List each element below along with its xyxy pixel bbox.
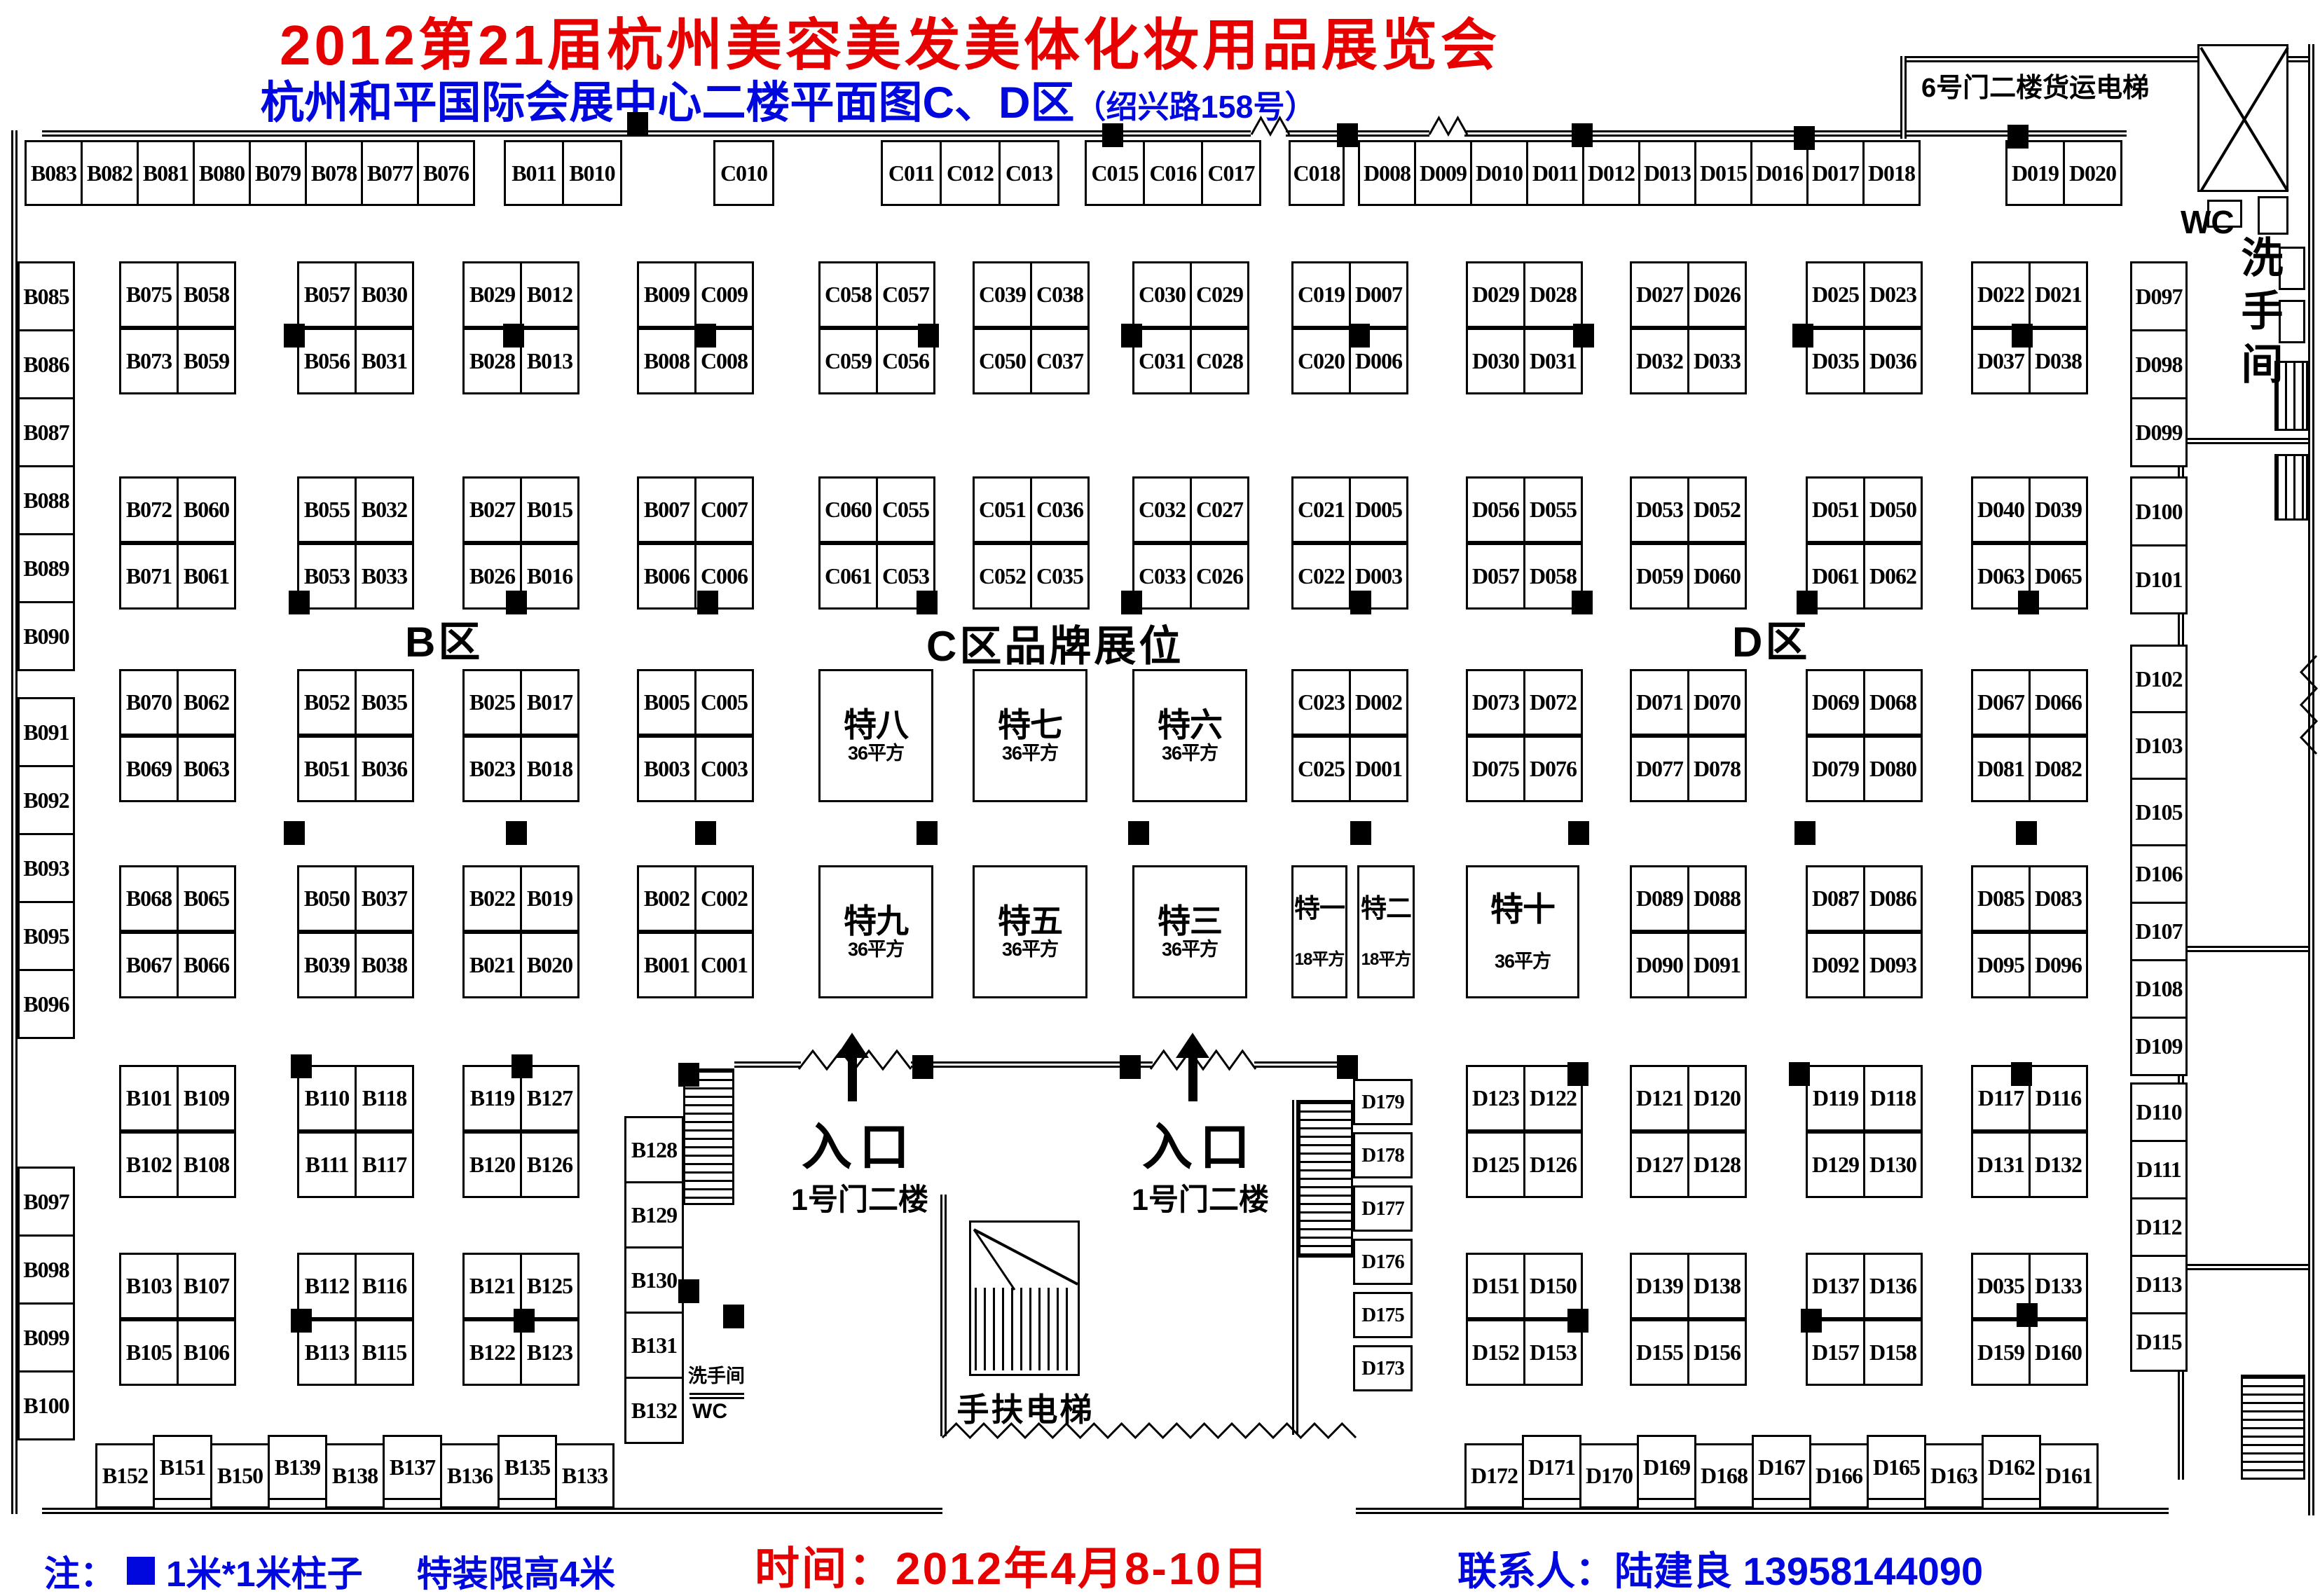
booth: C039 [973, 261, 1032, 328]
booth: D095 [1971, 932, 2031, 998]
stairs [1298, 1100, 1353, 1258]
booth: B130 [624, 1246, 684, 1314]
booth: D177 [1353, 1185, 1413, 1232]
booth: D032 [1630, 328, 1689, 394]
booth: B132 [624, 1377, 684, 1444]
booth: D020 [2063, 140, 2122, 206]
booth: D026 [1687, 261, 1747, 328]
booth: B069 [119, 736, 179, 802]
booth: B152 [95, 1443, 155, 1508]
booth: B089 [18, 533, 75, 603]
booth: D071 [1630, 669, 1689, 736]
booth: C035 [1030, 543, 1090, 610]
pillar-legend-square-icon [127, 1557, 155, 1585]
special-booth-area: 36平方 [848, 743, 904, 764]
booth: B052 [297, 669, 357, 736]
booth: D023 [1863, 261, 1923, 328]
pillar-icon [1568, 821, 1589, 845]
booth: C003 [694, 736, 754, 802]
booth: C037 [1030, 328, 1090, 394]
booth: D097 [2130, 261, 2188, 331]
booth: D113 [2130, 1255, 2188, 1314]
booth: B095 [18, 901, 75, 971]
booth: D091 [1687, 932, 1747, 998]
booth: B096 [18, 969, 75, 1039]
booth: B079 [249, 140, 307, 206]
arrow-stem [848, 1058, 857, 1101]
booth: D072 [1523, 669, 1583, 736]
booth: D155 [1630, 1319, 1689, 1386]
booth: D178 [1353, 1132, 1413, 1178]
booth: B078 [305, 140, 363, 206]
booth: D077 [1630, 736, 1689, 802]
restroom-label: 洗手间 [688, 1361, 745, 1388]
entrance-arrow [835, 1033, 869, 1101]
booth: B136 [440, 1443, 500, 1508]
special-booth: 特八36平方 [818, 669, 933, 802]
booth: D057 [1466, 543, 1525, 610]
booth: B017 [520, 669, 579, 736]
booth: D103 [2130, 711, 2188, 780]
booth: B056 [297, 328, 357, 394]
booth: C005 [694, 669, 754, 736]
booth: D053 [1630, 476, 1689, 543]
escalator-label: 手扶电梯 [943, 1384, 1108, 1431]
note-prefix: 注： [44, 1545, 116, 1596]
booth: D018 [1862, 140, 1921, 206]
booth: C013 [998, 140, 1059, 206]
pillar-icon [723, 1305, 744, 1328]
booth: D161 [2039, 1443, 2099, 1508]
pillar-icon [1572, 591, 1593, 614]
booth: C027 [1190, 476, 1249, 543]
booth: D028 [1523, 261, 1583, 328]
booth: D116 [2029, 1065, 2088, 1131]
booth: B023 [462, 736, 522, 802]
booth: B050 [297, 865, 357, 932]
booth: D008 [1358, 140, 1416, 206]
pillar-icon [291, 1054, 312, 1078]
booth: C030 [1132, 261, 1192, 328]
booth: C058 [818, 261, 878, 328]
booth: D076 [1523, 736, 1583, 802]
special-booth-name: 特五 [998, 903, 1062, 940]
booth: D170 [1579, 1443, 1639, 1508]
booth: B060 [177, 476, 236, 543]
booth: B120 [462, 1131, 522, 1198]
booth: B057 [297, 261, 357, 328]
pillar-icon [506, 821, 527, 845]
booth: B001 [637, 932, 696, 998]
booth: D121 [1630, 1065, 1689, 1131]
booth: B013 [520, 328, 579, 394]
special-booth: 特五36平方 [973, 865, 1087, 998]
booth: D179 [1353, 1079, 1413, 1125]
booth: D073 [1466, 669, 1525, 736]
booth: B071 [119, 543, 179, 610]
booth: B088 [18, 465, 75, 535]
booth: D125 [1466, 1131, 1525, 1198]
event-time: 时间：2012年4月8-10日 [755, 1533, 1270, 1596]
booth: B131 [624, 1312, 684, 1379]
booth: B065 [177, 865, 236, 932]
booth: D039 [2029, 476, 2088, 543]
booth: D156 [1687, 1319, 1747, 1386]
booth: B015 [520, 476, 579, 543]
pillar-icon [2012, 324, 2033, 348]
booth: D012 [1582, 140, 1640, 206]
booth: C009 [694, 261, 754, 328]
wall [2175, 1264, 2312, 1270]
booth: D021 [2029, 261, 2088, 328]
booth: B029 [462, 261, 522, 328]
booth: D112 [2130, 1197, 2188, 1257]
booth: C002 [694, 865, 754, 932]
booth: D111 [2130, 1140, 2188, 1199]
booth: B027 [462, 476, 522, 543]
pillar-icon [1573, 324, 1594, 348]
wall [1292, 1100, 1298, 1435]
booth: D092 [1806, 932, 1865, 998]
booth: C012 [940, 140, 1001, 206]
booth: D017 [1806, 140, 1865, 206]
pillar-icon [1128, 821, 1149, 845]
booth: D107 [2130, 902, 2188, 961]
wall [1356, 1508, 2169, 1514]
pillar-icon [1102, 123, 1123, 147]
page-subtitle: 杭州和平国际会展中心二楼平面图C、D区（绍兴路158号） [175, 67, 1401, 131]
booth: B033 [355, 543, 414, 610]
booth: D009 [1414, 140, 1472, 206]
booth: C022 [1291, 543, 1351, 610]
booth: B077 [361, 140, 419, 206]
stairs [683, 1068, 734, 1205]
booth: D158 [1863, 1319, 1923, 1386]
pillar-icon [1801, 1309, 1822, 1333]
booth: B032 [355, 476, 414, 543]
booth: D115 [2130, 1312, 2188, 1372]
special-booth-area: 36平方 [1002, 743, 1058, 764]
pillar-icon [1337, 1055, 1358, 1079]
freight-elevator-box [2197, 44, 2288, 192]
booth: B086 [18, 329, 75, 399]
booth: D051 [1806, 476, 1865, 543]
pillar-icon [917, 821, 938, 845]
booth: B118 [355, 1065, 414, 1131]
booth: B087 [18, 397, 75, 467]
booth: D088 [1687, 865, 1747, 932]
pillar-icon [1789, 1062, 1810, 1086]
special-booth-area: 36平方 [848, 940, 904, 961]
booth: C020 [1291, 328, 1351, 394]
pillar-icon [917, 591, 938, 614]
booth: D085 [1971, 865, 2031, 932]
booth: D052 [1687, 476, 1747, 543]
booth: D151 [1466, 1253, 1525, 1319]
booth: D152 [1466, 1319, 1525, 1386]
pillar-icon [1121, 591, 1142, 614]
pillar-icon [1792, 324, 1813, 348]
pillar-icon [1567, 1309, 1588, 1333]
booth: C050 [973, 328, 1032, 394]
booth: D159 [1971, 1319, 2031, 1386]
booth: B022 [462, 865, 522, 932]
booth: B108 [177, 1131, 236, 1198]
restroom-label-vertical: 洗手间 [2228, 235, 2289, 474]
note-pillar: 1米*1米柱子 [166, 1545, 363, 1596]
wall [2175, 946, 2312, 952]
booth: C052 [973, 543, 1032, 610]
booth: D059 [1630, 543, 1689, 610]
special-booth-name: 特九 [844, 903, 908, 940]
booth: D105 [2130, 778, 2188, 846]
booth: C055 [876, 476, 935, 543]
booth: B126 [520, 1131, 579, 1198]
booth: D078 [1687, 736, 1747, 802]
booth: B068 [119, 865, 179, 932]
booth: C019 [1291, 261, 1351, 328]
booth: B128 [624, 1116, 684, 1183]
booth: B081 [137, 140, 195, 206]
booth: D080 [1863, 736, 1923, 802]
zone-label-d: D区 [1732, 608, 1810, 669]
wall [734, 1061, 801, 1068]
booth: D062 [1863, 543, 1923, 610]
note-height-limit: 特装限高4米 [417, 1545, 615, 1596]
booth: B009 [637, 261, 696, 328]
booth: D016 [1750, 140, 1808, 206]
booth: B020 [520, 932, 579, 998]
gate-label: 1号门二楼 [1099, 1176, 1302, 1219]
special-booth-name: 特十 [1490, 891, 1555, 928]
booth: B150 [210, 1443, 270, 1508]
booth: D123 [1466, 1065, 1525, 1131]
special-booth-area: 36平方 [1162, 743, 1218, 764]
booth: D007 [1349, 261, 1408, 328]
booth: B102 [119, 1131, 179, 1198]
special-booth-name: 特一 [1294, 895, 1345, 923]
booth: D060 [1687, 543, 1747, 610]
booth: D056 [1466, 476, 1525, 543]
special-booth: 特九36平方 [818, 865, 933, 998]
booth: D175 [1353, 1292, 1413, 1338]
pillar-icon [695, 324, 716, 348]
booth: D106 [2130, 844, 2188, 904]
legend-note: 注：1米*1米柱子特装限高4米 [44, 1545, 615, 1596]
booth: B036 [355, 736, 414, 802]
booth: B082 [81, 140, 139, 206]
subtitle-main: 杭州和平国际会展中心二楼平面图C、D区 [260, 78, 1074, 128]
booth: B018 [520, 736, 579, 802]
pillar-icon [514, 1309, 535, 1333]
special-booth-area: 18平方 [1295, 951, 1345, 969]
wall [689, 1393, 744, 1399]
booth: D118 [1863, 1065, 1923, 1131]
booth: D067 [1971, 669, 2031, 736]
booth: C017 [1201, 140, 1261, 206]
booth: D036 [1863, 328, 1923, 394]
special-booth-area: 36平方 [1162, 940, 1218, 961]
booth: D127 [1630, 1131, 1689, 1198]
zone-label-c: C区品牌展位 [926, 612, 1183, 673]
booth: D131 [1971, 1131, 2031, 1198]
booth: B038 [355, 932, 414, 998]
booth: B115 [355, 1319, 414, 1386]
booth: C057 [876, 261, 935, 328]
pillar-icon [291, 1309, 312, 1333]
booth: D108 [2130, 959, 2188, 1019]
booth: D096 [2029, 932, 2088, 998]
booth: B137 [383, 1435, 442, 1500]
booth: D081 [1971, 736, 2031, 802]
booth: D110 [2130, 1082, 2188, 1142]
booth: B103 [119, 1253, 179, 1319]
booth: D130 [1863, 1131, 1923, 1198]
booth: D098 [2130, 329, 2188, 399]
pillar-icon [1120, 1055, 1141, 1079]
pillar-icon [695, 821, 716, 845]
booth: D100 [2130, 476, 2188, 546]
booth: D119 [1806, 1065, 1865, 1131]
booth: D035 [1806, 328, 1865, 394]
pillar-icon [627, 112, 648, 136]
pillar-icon [2017, 1303, 2038, 1327]
booth: B101 [119, 1065, 179, 1131]
special-booth-area: 36平方 [1002, 940, 1058, 961]
arrow-stem [1188, 1058, 1197, 1101]
booth: D102 [2130, 645, 2188, 713]
booth: B097 [18, 1167, 75, 1237]
booth: D168 [1694, 1443, 1754, 1508]
booth: B066 [177, 932, 236, 998]
booth: C032 [1132, 476, 1192, 543]
wc-label: WC [2181, 203, 2235, 241]
floor-plan: 2012第21届杭州美容美发美体化妆用品展览会 杭州和平国际会展中心二楼平面图C… [0, 0, 2320, 1596]
booth: D171 [1522, 1435, 1581, 1500]
pillar-icon [678, 1063, 699, 1087]
pillar-icon [1572, 123, 1593, 147]
special-booth-area: 36平方 [1495, 951, 1551, 972]
special-booth: 特六36平方 [1132, 669, 1247, 802]
booth: D083 [2029, 865, 2088, 932]
booth: D136 [1863, 1253, 1923, 1319]
wall [1900, 56, 1907, 139]
booth: C026 [1190, 543, 1249, 610]
zone-label-b: B区 [405, 608, 483, 669]
arrow-head-icon [1176, 1033, 1209, 1058]
pillar-icon [284, 821, 305, 845]
booth: B133 [555, 1443, 615, 1508]
booth: B051 [297, 736, 357, 802]
pillar-icon [1349, 324, 1370, 348]
booth: D128 [1687, 1131, 1747, 1198]
booth: B006 [637, 543, 696, 610]
booth: D075 [1466, 736, 1525, 802]
booth: D005 [1349, 476, 1408, 543]
booth: C018 [1289, 140, 1345, 206]
booth: B107 [177, 1253, 236, 1319]
booth: C015 [1085, 140, 1145, 206]
booth: D169 [1637, 1435, 1696, 1500]
wall-break-zigzag [1251, 116, 1289, 136]
booth: B111 [297, 1131, 357, 1198]
booth: D033 [1687, 328, 1747, 394]
pillar-icon [2011, 1062, 2032, 1086]
booth: B002 [637, 865, 696, 932]
booth: B016 [520, 543, 579, 610]
special-booth-area: 18平方 [1361, 951, 1411, 969]
booth: D138 [1687, 1253, 1747, 1319]
pillar-icon [284, 324, 305, 348]
booth: D068 [1863, 669, 1923, 736]
contact-info: 联系人：陆建良 13958144090 [1457, 1540, 1983, 1596]
booth: B011 [504, 140, 564, 206]
booth: B105 [119, 1319, 179, 1386]
booth: B062 [177, 669, 236, 736]
booth: B061 [177, 543, 236, 610]
special-booth-name: 特六 [1158, 707, 1222, 743]
booth: B098 [18, 1234, 75, 1305]
booth: D029 [1466, 261, 1525, 328]
booth: B059 [177, 328, 236, 394]
booth: D173 [1353, 1345, 1413, 1391]
booth: C021 [1291, 476, 1351, 543]
booth: C023 [1291, 669, 1351, 736]
wall [42, 1508, 942, 1514]
booth: D082 [2029, 736, 2088, 802]
pillar-icon [678, 1279, 699, 1303]
booth: D162 [1982, 1435, 2041, 1500]
booth: B116 [355, 1253, 414, 1319]
entrance-label: 入口 [796, 1106, 922, 1179]
wall-break-zigzag [1429, 116, 1467, 136]
booth: D001 [1349, 736, 1408, 802]
freight-elevator-label: 6号门二楼货运电梯 [1921, 66, 2188, 104]
booth: B055 [297, 476, 357, 543]
booth: B035 [355, 669, 414, 736]
booth: C016 [1143, 140, 1203, 206]
booth: D090 [1630, 932, 1689, 998]
wall [11, 130, 18, 1514]
pillar-icon [2007, 125, 2029, 149]
booth: B070 [119, 669, 179, 736]
booth: B135 [497, 1435, 557, 1500]
pillar-icon [2018, 591, 2039, 614]
pillar-icon [1794, 126, 1815, 150]
service-room [2258, 196, 2288, 235]
wc-label: WC [692, 1400, 727, 1424]
booth: C038 [1030, 261, 1090, 328]
booth: B063 [177, 736, 236, 802]
pillar-icon [503, 324, 524, 348]
booth: B039 [297, 932, 357, 998]
booth: D038 [2029, 328, 2088, 394]
booth: D167 [1752, 1435, 1811, 1500]
special-booth-name: 特八 [844, 707, 908, 743]
pillar-icon [1121, 324, 1142, 348]
booth: C051 [973, 476, 1032, 543]
booth: B106 [177, 1319, 236, 1386]
pillar-icon [912, 1055, 933, 1079]
wall-break-zigzag [2300, 656, 2318, 754]
booth: D011 [1526, 140, 1584, 206]
booth: D087 [1806, 865, 1865, 932]
booth: B012 [520, 261, 579, 328]
pillar-icon [1350, 821, 1371, 845]
booth: D002 [1349, 669, 1408, 736]
booth: B031 [355, 328, 414, 394]
booth: B138 [325, 1443, 385, 1508]
